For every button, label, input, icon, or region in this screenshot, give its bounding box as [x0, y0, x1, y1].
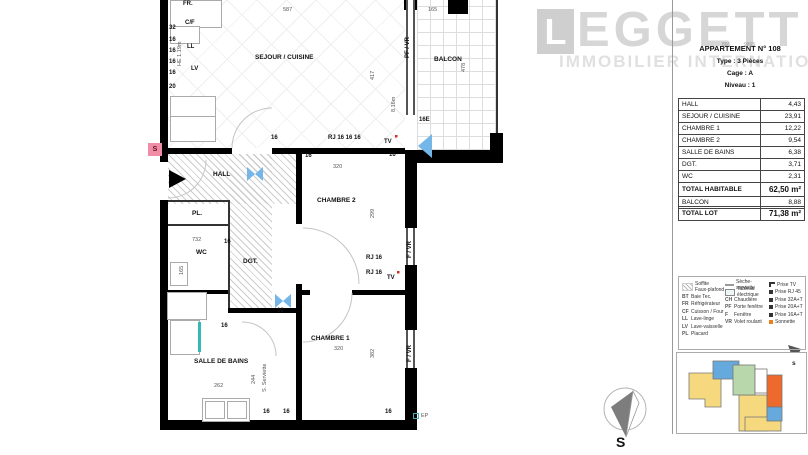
compass-icon [604, 388, 646, 437]
plan-label: FR. [183, 1, 193, 7]
plan-label: RJ 16 [366, 270, 382, 276]
legend-label: Prise 20A+T [775, 304, 803, 310]
table-row: CHAMBRE 112,22 [679, 123, 804, 135]
partition-wall [228, 200, 230, 308]
leggett-logo-square: L [537, 9, 574, 54]
room-name: DGT. [679, 161, 760, 168]
legend-item: PFPorte fenêtre [725, 304, 769, 312]
plan-label: 16 [271, 135, 278, 141]
room-name: TOTAL LOT [679, 210, 760, 217]
plan-label: 587 [283, 8, 292, 14]
legend-label: Baie Tec. [691, 294, 711, 300]
legend-item: Prise TV [769, 281, 805, 289]
legend-abbr: CH [725, 297, 734, 303]
plan-label: 16 [221, 323, 228, 329]
legend-abbr: VR [725, 319, 734, 325]
bathroom-fixture [167, 292, 207, 320]
plan-label: BALCON [434, 57, 462, 64]
table-row: HALL4,43 [679, 99, 804, 111]
keyplan-drawing [677, 353, 806, 433]
room-name: CHAMBRE 1 [679, 125, 760, 132]
plan-label: 417 [371, 71, 377, 80]
plan-label: EP [421, 414, 428, 420]
apartment-level: Niveau : 1 [676, 82, 804, 89]
balcony-edge [496, 0, 498, 152]
legend-item: FFenêtre [725, 311, 769, 319]
kitchen-fixture [170, 96, 216, 118]
plan-label: WC [196, 250, 207, 257]
wall-segment [168, 148, 232, 154]
room-area: 23,91 [760, 111, 804, 122]
sonnette-icon [769, 320, 773, 324]
wall-segment [490, 133, 503, 150]
room-area: 62,50 m² [760, 183, 804, 196]
sink-fixture [205, 401, 225, 419]
legend-item: Sonnette [769, 319, 805, 327]
apartment-cage: Cage : A [676, 70, 804, 77]
legend-label: Lave-vaisselle [691, 324, 723, 330]
legend-label: Prise RJ 45 [775, 289, 801, 295]
socket-icon [769, 305, 773, 309]
plan-label: 165 [180, 266, 186, 275]
plan-label: SEJOUR / CUISINE [255, 55, 314, 62]
wall-segment [296, 154, 302, 224]
table-row: WC2,31 [679, 171, 804, 183]
plan-label: 16E [419, 117, 430, 123]
table-row: CHAMBRE 29,54 [679, 135, 804, 147]
ep-marker [413, 413, 419, 419]
plan-label: LV [191, 66, 198, 72]
room-name: HALL [679, 101, 760, 108]
plan-label: TV [387, 275, 395, 281]
legend-column-1: Soffite Faux-plafondBTBaie Tec.FRRéfrigé… [682, 281, 726, 338]
kitchen-fixture [170, 0, 222, 28]
room-area: 12,22 [760, 123, 804, 134]
plan-label: 8.16m [392, 97, 398, 112]
legend-label: Placard [691, 331, 708, 337]
plan-label: PF / VR [405, 37, 411, 58]
plan-label: TV [384, 139, 392, 145]
legend-column-3: Prise TVPrise RJ 45Prise 32A+TPrise 20A+… [769, 281, 805, 326]
legend-abbr: PL [682, 331, 691, 337]
plan-label: PL. [192, 211, 202, 218]
legend-item: Prise 16A+T [769, 311, 805, 319]
legend-item: FRRéfrigérateur [682, 301, 726, 309]
legend-item: VRVolet roulant [725, 319, 769, 327]
entrance-arrow-icon [169, 170, 186, 188]
room-area: 71,38 m² [760, 207, 804, 220]
wall-segment [405, 265, 417, 330]
plan-label: SALLE DE BAINS [194, 359, 248, 366]
plan-label: LL [187, 44, 194, 50]
plan-label: F / VR [407, 345, 413, 362]
legend-label: Prise TV [777, 282, 796, 288]
plan-label: 20 [169, 84, 176, 90]
room-area: 2,31 [760, 171, 804, 182]
table-row: TOTAL LOT71,38 m² [679, 207, 804, 220]
compass-south-label: S [616, 434, 625, 450]
table-row: TOTAL HABITABLE62,50 m² [679, 183, 804, 197]
legend-label: Sonnette [775, 319, 795, 325]
wall-segment [405, 150, 503, 163]
room-area: 6,38 [760, 147, 804, 158]
legend-item: Tableau électrique [725, 289, 769, 297]
legend-label: Prise 16A+T [775, 312, 803, 318]
legend-abbr: CF [682, 309, 691, 315]
wall-segment [160, 420, 417, 430]
seche-serviette-symbol [198, 322, 201, 352]
socket-icon [769, 313, 773, 317]
wall-segment [160, 0, 168, 162]
plan-label: C/F [185, 20, 195, 26]
line-swatch-icon [725, 284, 734, 286]
leggett-logo-initial: L [545, 14, 567, 50]
balcony-tile-grid [417, 0, 497, 150]
tv-icon [769, 282, 775, 287]
sink-fixture [227, 401, 247, 419]
legend-item: LLLave-linge [682, 316, 726, 324]
legend-label: Chaudière [734, 297, 757, 303]
legend-item: PLPlacard [682, 331, 726, 339]
legend-label: Soffite Faux-plafond [695, 281, 724, 293]
legend-item: Prise 20A+T [769, 304, 805, 312]
legend-item: Prise 32A+T [769, 296, 805, 304]
legend-abbr: BT [682, 294, 691, 300]
partition-wall [168, 224, 228, 226]
plan-label: 16 [169, 37, 176, 43]
wall-segment [302, 290, 310, 295]
plan-label: 478 [462, 63, 468, 72]
legend-item: CFCuisson / Four [682, 308, 726, 316]
room-name: SALLE DE BAINS [679, 149, 760, 156]
legend-label: Fenêtre [734, 312, 751, 318]
plan-label: 382 [371, 349, 377, 358]
legend-label: Prise 32A+T [775, 297, 803, 303]
plan-label: F / VR [407, 241, 413, 258]
plan-label: 320 [333, 165, 342, 171]
legend-abbr: FR [682, 301, 691, 307]
plan-label: 16 [389, 152, 396, 158]
legend-label: Porte fenêtre [734, 304, 763, 310]
room-area: 4,43 [760, 99, 804, 110]
apartment-type: Type : 3 Pièces [676, 58, 804, 65]
dgt-ceiling-hatch [230, 154, 272, 308]
legend-column-2: Sèche-servietteTableau électriqueCHChaud… [725, 281, 769, 326]
plan-label: 16 [283, 409, 290, 415]
legend-item: Prise RJ 45 [769, 289, 805, 297]
plan-label: 244 [252, 375, 258, 384]
table-row: SEJOUR / CUISINE23,91 [679, 111, 804, 123]
plan-label: 16 [224, 239, 231, 245]
plan-label: HALL [213, 172, 230, 179]
room-name: BALCON [679, 199, 760, 206]
total-lot-row: TOTAL LOT71,38 m² [678, 206, 805, 221]
room-area: 3,71 [760, 159, 804, 170]
plan-label: 262 [214, 384, 223, 390]
wall-segment [448, 0, 468, 14]
sonnette-letter: S [153, 146, 158, 153]
legend-item: Soffite Faux-plafond [682, 281, 726, 293]
kitchen-fixture [170, 116, 216, 142]
legend-abbr: F [725, 312, 734, 318]
plan-label: DGT. [243, 259, 258, 266]
room-area: 9,54 [760, 135, 804, 146]
wall-segment [352, 290, 417, 295]
plan-label: 16 [277, 308, 284, 314]
plan-label: 16 [263, 409, 270, 415]
table-row: DGT.3,71 [679, 159, 804, 171]
apartment-header: APPARTEMENT N° 108 Type : 3 Pièces Cage … [676, 36, 804, 89]
table-row: SALLE DE BAINS6,38 [679, 147, 804, 159]
plan-label: RJ 16 16 16 [328, 135, 361, 141]
legend-item: LVLave-vaisselle [682, 323, 726, 331]
partition-wall [168, 200, 228, 202]
plan-label: HE 1.19m [178, 42, 184, 66]
legend-label: Réfrigérateur [691, 301, 720, 307]
plan-label: CHAMBRE 1 [311, 336, 350, 343]
plan-label: 16 [169, 59, 176, 65]
plan-label: 299 [371, 209, 377, 218]
plan-label: 32 [169, 25, 176, 31]
floor-plan-sheet: L EGGETT IMMOBILIER INTERNATIONAL S [0, 0, 808, 455]
room-name: TOTAL HABITABLE [679, 186, 760, 193]
legend-abbr: LV [682, 324, 691, 330]
apartment-title: APPARTEMENT N° 108 [676, 44, 804, 53]
sonnette-marker: S [148, 143, 162, 156]
plan-label: 16 [169, 70, 176, 76]
plan-label: S. Serviette [263, 364, 269, 392]
wall-segment [228, 308, 296, 313]
legend-label: Lave-linge [691, 316, 714, 322]
legend-box: Soffite Faux-plafondBTBaie Tec.FRRéfrigé… [678, 276, 806, 350]
area-table: HALL4,43SEJOUR / CUISINE23,91CHAMBRE 112… [678, 98, 805, 209]
plan-label: CHAMBRE 2 [317, 198, 356, 205]
legend-abbr: PF [725, 304, 734, 310]
box-swatch-icon [725, 289, 735, 296]
plan-label: 16 [169, 48, 176, 54]
wall-segment [272, 148, 405, 154]
room-name: SEJOUR / CUISINE [679, 113, 760, 120]
legend-label: Cuisson / Four [691, 309, 724, 315]
hatch-swatch-icon [682, 283, 693, 291]
wall-segment [296, 284, 302, 420]
room-name: CHAMBRE 2 [679, 137, 760, 144]
plan-label: 16 [305, 153, 312, 159]
socket-icon [769, 298, 773, 302]
mini-compass-south-label: s [792, 360, 796, 367]
plan-label: RJ 16 [366, 255, 382, 261]
plan-label: 732 [192, 238, 201, 244]
plan-label: 165 [428, 8, 437, 14]
keyplan-box [676, 352, 807, 434]
legend-abbr: LL [682, 316, 691, 322]
legend-item: BTBaie Tec. [682, 293, 726, 301]
panel-divider [672, 0, 673, 434]
legend-label: Volet roulant [734, 319, 762, 325]
plan-label: 16 [385, 409, 392, 415]
room-name: WC [679, 173, 760, 180]
plan-label: 320 [334, 347, 343, 353]
bathtub-fixture [170, 320, 200, 355]
rj45-icon [769, 290, 773, 294]
